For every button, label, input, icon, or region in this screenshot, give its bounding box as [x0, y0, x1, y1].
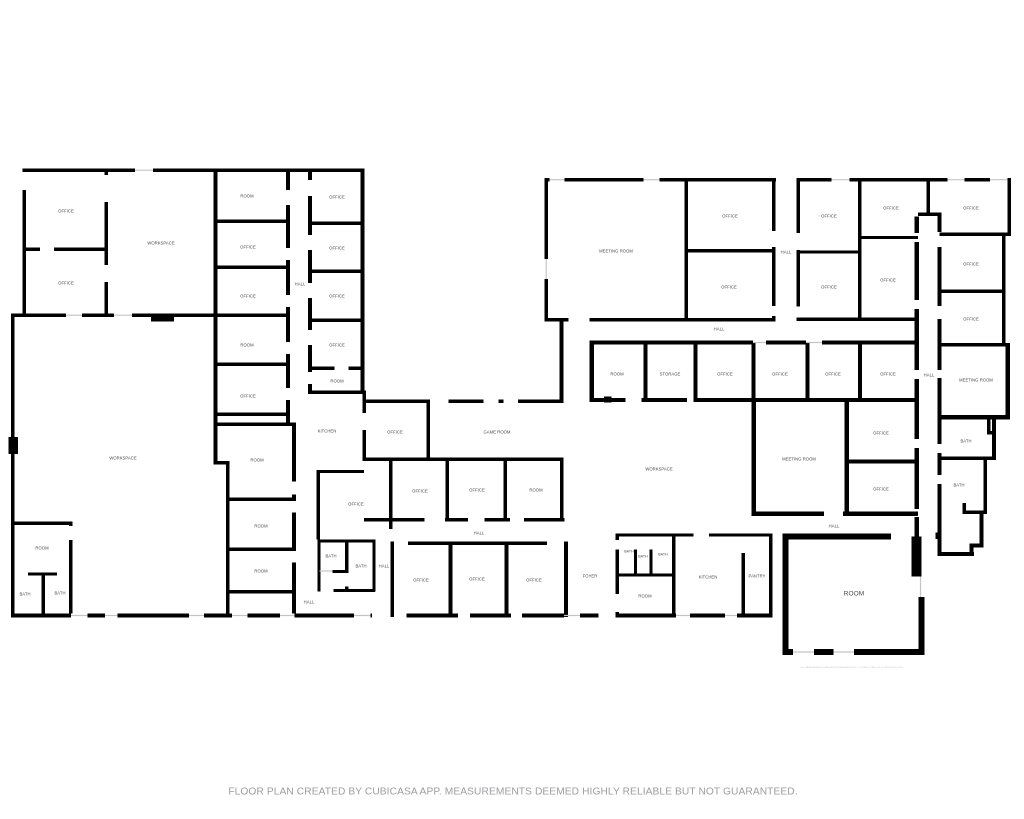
svg-text:ROOM: ROOM — [844, 590, 864, 597]
svg-text:OFFICE: OFFICE — [329, 246, 345, 251]
svg-text:ROOM: ROOM — [35, 546, 49, 551]
svg-text:ROOM: ROOM — [638, 594, 652, 599]
svg-text:OFFICE: OFFICE — [873, 431, 889, 436]
svg-text:OFFICE: OFFICE — [240, 245, 256, 250]
svg-text:MEETING ROOM: MEETING ROOM — [599, 249, 633, 254]
svg-text:OFFICE: OFFICE — [873, 487, 889, 492]
svg-text:KITCHEN: KITCHEN — [699, 575, 718, 580]
svg-text:BATH: BATH — [624, 549, 634, 553]
svg-text:OFFICE: OFFICE — [240, 294, 256, 299]
svg-text:OFFICE: OFFICE — [772, 372, 788, 377]
svg-text:ROOM: ROOM — [254, 524, 268, 529]
svg-text:OFFICE: OFFICE — [240, 394, 256, 399]
svg-text:OFFICE: OFFICE — [825, 372, 841, 377]
svg-text:HALL: HALL — [829, 524, 840, 529]
svg-text:HALL: HALL — [295, 282, 306, 287]
svg-text:OFFICE: OFFICE — [721, 285, 737, 290]
svg-text:BATH: BATH — [325, 554, 336, 559]
svg-text:OFFICE: OFFICE — [412, 489, 428, 494]
svg-text:HALL: HALL — [781, 250, 792, 255]
svg-text:OFFICE: OFFICE — [469, 577, 485, 582]
svg-text:OFFICE: OFFICE — [963, 206, 979, 211]
svg-text:ROOM: ROOM — [529, 488, 543, 493]
svg-text:HALL: HALL — [304, 600, 315, 605]
svg-text:GAME ROOM: GAME ROOM — [484, 430, 511, 435]
svg-text:MEETING ROOM: MEETING ROOM — [782, 457, 816, 462]
svg-text:OFFICE: OFFICE — [880, 372, 896, 377]
svg-text:HALL: HALL — [379, 564, 390, 569]
svg-text:OFFICE: OFFICE — [883, 206, 899, 211]
svg-text:ROOM: ROOM — [250, 458, 264, 463]
svg-text:ROOM: ROOM — [330, 379, 344, 384]
svg-text:OFFICE: OFFICE — [526, 578, 542, 583]
svg-text:WORKSPACE: WORKSPACE — [109, 456, 137, 461]
svg-text:OFFICE: OFFICE — [348, 502, 364, 507]
svg-text:ROOM: ROOM — [254, 569, 268, 574]
svg-text:OFFICE: OFFICE — [821, 214, 837, 219]
svg-text:BATH: BATH — [355, 564, 366, 569]
svg-text:BATH: BATH — [54, 591, 65, 596]
svg-text:OFFICE: OFFICE — [963, 262, 979, 267]
svg-text:FLOOR PLAN CREATED BY CUBICASA: FLOOR PLAN CREATED BY CUBICASA APP. MEAS… — [228, 787, 797, 798]
svg-text:OFFICE: OFFICE — [880, 278, 896, 283]
svg-text:OFFICE: OFFICE — [329, 343, 345, 348]
svg-text:OFFICE: OFFICE — [717, 372, 733, 377]
svg-text:BATH: BATH — [19, 592, 30, 597]
svg-text:HALL: HALL — [924, 373, 935, 378]
svg-text:KITCHEN: KITCHEN — [318, 429, 337, 434]
svg-text:BATH: BATH — [953, 483, 964, 488]
svg-text:WORKSPACE: WORKSPACE — [147, 241, 175, 246]
svg-text:BATH: BATH — [960, 439, 971, 444]
svg-text:HALL: HALL — [714, 327, 725, 332]
svg-text:ROOM: ROOM — [240, 343, 254, 348]
svg-text:OFFICE: OFFICE — [413, 578, 429, 583]
svg-text:OFFICE: OFFICE — [329, 294, 345, 299]
svg-text:MEETING ROOM: MEETING ROOM — [959, 378, 993, 383]
svg-text:ROOM: ROOM — [610, 372, 624, 377]
svg-text:WORKSPACE: WORKSPACE — [645, 467, 673, 472]
svg-text:PANTRY: PANTRY — [749, 574, 766, 579]
svg-text:OFFICE: OFFICE — [387, 430, 403, 435]
svg-text:ALL MEASUREMENTS ARE APPROXIMA: ALL MEASUREMENTS ARE APPROXIMATE AND NOT… — [800, 666, 904, 669]
svg-text:FOYER: FOYER — [583, 574, 598, 579]
svg-text:STORAGE: STORAGE — [660, 372, 681, 377]
svg-text:OFFICE: OFFICE — [722, 214, 738, 219]
svg-text:ROOM: ROOM — [240, 194, 254, 199]
svg-text:OFFICE: OFFICE — [469, 488, 485, 493]
svg-text:OFFICE: OFFICE — [58, 209, 74, 214]
svg-text:BATH: BATH — [638, 554, 648, 558]
svg-text:OFFICE: OFFICE — [963, 317, 979, 322]
svg-text:OFFICE: OFFICE — [329, 195, 345, 200]
svg-text:HALL: HALL — [474, 531, 485, 536]
svg-text:BATH: BATH — [658, 552, 668, 556]
svg-text:OFFICE: OFFICE — [58, 281, 74, 286]
svg-text:OFFICE: OFFICE — [821, 285, 837, 290]
